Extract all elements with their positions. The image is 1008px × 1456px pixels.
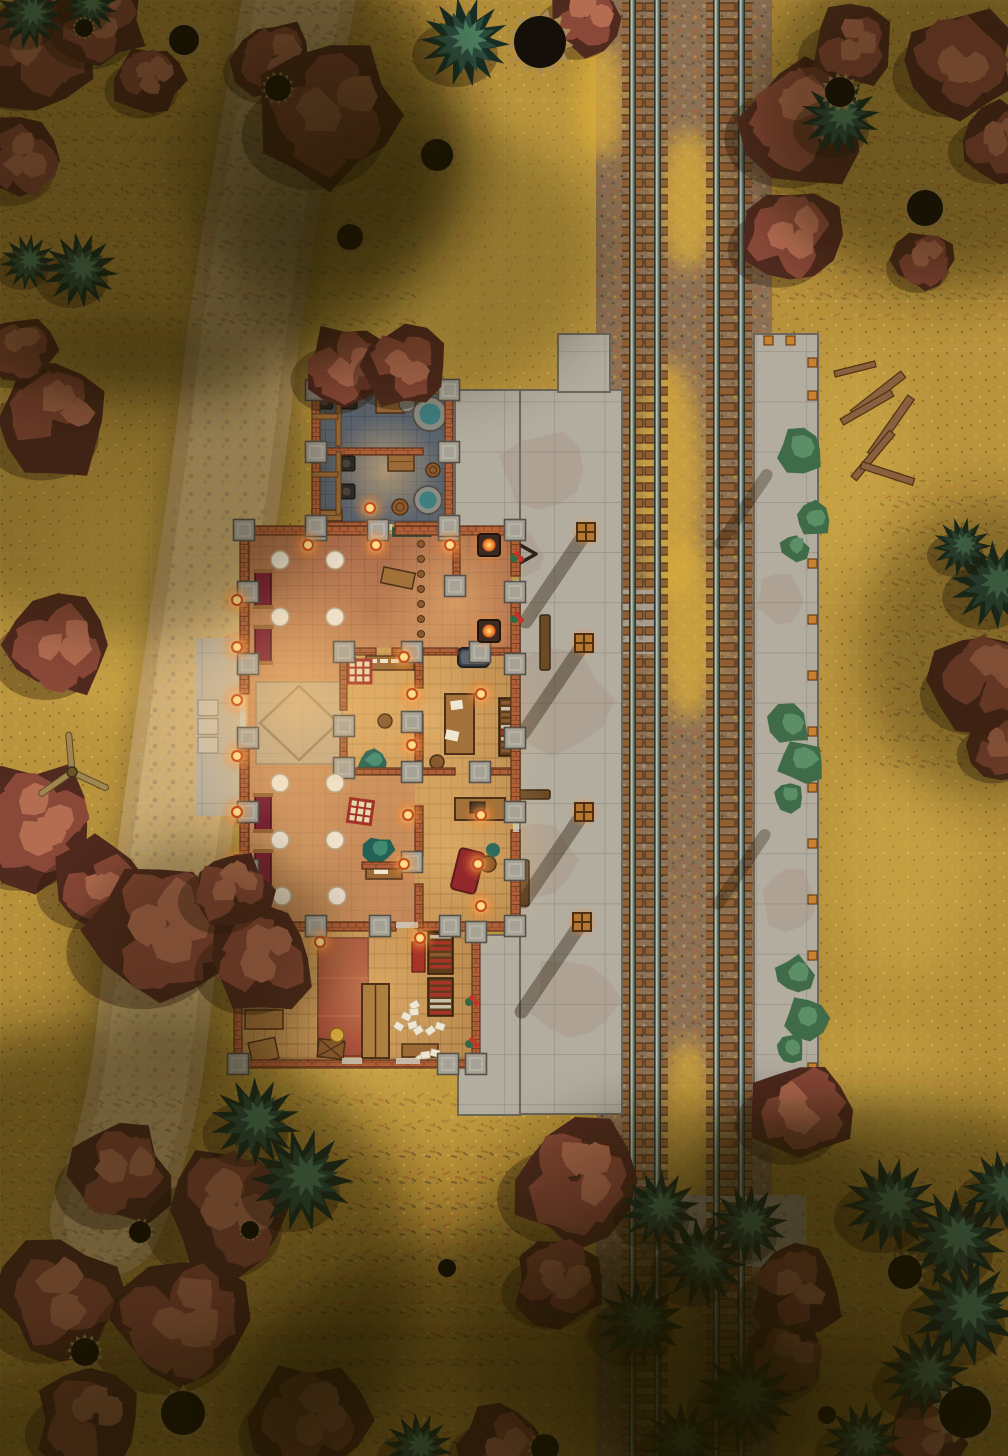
platform-post xyxy=(808,727,817,736)
brick-wall xyxy=(511,600,520,806)
wall-lamp xyxy=(445,540,455,550)
barrel xyxy=(426,463,440,477)
floor-lamp xyxy=(271,831,289,849)
stone-pillar xyxy=(402,762,423,783)
red-flowers xyxy=(514,612,520,618)
burrow-hole xyxy=(514,16,566,68)
stove-fire xyxy=(483,625,496,638)
stone-pillar xyxy=(505,860,526,881)
stone-pillar xyxy=(505,802,526,823)
wall-lamp xyxy=(415,933,425,943)
stone-pillar xyxy=(505,728,526,749)
books xyxy=(430,981,451,985)
platform-post xyxy=(808,391,817,400)
door-threshold xyxy=(342,1058,362,1064)
platform-post xyxy=(786,336,795,345)
desk-paper xyxy=(450,700,463,711)
stone-pillar xyxy=(440,916,461,937)
windmill-hub xyxy=(67,767,77,777)
red-flowers xyxy=(518,556,524,562)
stone-pillar xyxy=(445,576,466,597)
stone-pillar xyxy=(505,916,526,937)
wall-lamp xyxy=(476,810,486,820)
books xyxy=(430,965,451,969)
books xyxy=(430,993,451,997)
platform-post xyxy=(808,615,817,624)
bush-highlight xyxy=(783,787,798,800)
wall-lamp xyxy=(473,859,483,869)
platform-post xyxy=(808,783,817,792)
toilet-seat xyxy=(343,460,351,468)
map-svg xyxy=(0,0,1008,1456)
platform-post xyxy=(808,895,817,904)
hat xyxy=(330,1028,344,1042)
wall-lamp xyxy=(476,901,486,911)
red-flowers xyxy=(514,551,520,557)
brick-wall xyxy=(320,448,423,455)
stone-pillar xyxy=(466,1054,487,1075)
rope-knot xyxy=(418,616,425,623)
platform-post xyxy=(808,951,817,960)
toilet-seat xyxy=(343,488,351,496)
rope-knot xyxy=(418,571,425,578)
wall-lamp xyxy=(403,810,413,820)
floor-lamp xyxy=(326,831,344,849)
stone-pillar xyxy=(505,654,526,675)
basin-water xyxy=(419,491,436,508)
platform-bench xyxy=(540,615,550,670)
red-flowers xyxy=(469,995,475,1001)
stove-fire xyxy=(483,539,496,552)
books xyxy=(501,719,510,723)
rope-knot xyxy=(418,556,425,563)
battlemap-train-station xyxy=(0,0,1008,1456)
door-threshold xyxy=(396,1058,420,1064)
stone-pillar xyxy=(439,442,460,463)
stone-pillar xyxy=(505,582,526,603)
red-flowers xyxy=(518,617,524,623)
barrel xyxy=(392,499,408,515)
floor-lamp xyxy=(326,551,344,569)
wall-lamp xyxy=(476,689,486,699)
books xyxy=(501,749,510,753)
bench-end xyxy=(253,829,273,833)
books xyxy=(501,707,510,711)
red-flowers xyxy=(473,1042,479,1048)
wall-lamp xyxy=(371,540,381,550)
platform-post xyxy=(764,336,773,345)
forest-shadow xyxy=(75,840,335,1060)
stone-pillar xyxy=(438,1054,459,1075)
basin-water xyxy=(419,403,440,424)
stall-partition xyxy=(312,414,338,419)
books xyxy=(430,987,451,991)
stall-partition xyxy=(336,452,341,514)
platform-post xyxy=(808,559,817,568)
floor-lamp xyxy=(328,887,346,905)
books xyxy=(430,959,451,963)
rope-knot xyxy=(418,631,425,638)
platform-post xyxy=(808,671,817,680)
rope-knot xyxy=(418,601,425,608)
red-flowers xyxy=(469,1037,475,1043)
stone-pillar xyxy=(370,916,391,937)
stone-pillar xyxy=(505,520,526,541)
platform-post xyxy=(808,839,817,848)
books xyxy=(430,1011,451,1015)
stool xyxy=(430,755,444,769)
red-flowers xyxy=(473,1000,479,1006)
forest-shadow xyxy=(170,50,470,290)
rope-knot xyxy=(418,541,425,548)
books xyxy=(430,1005,451,1009)
hall-light-bloom xyxy=(180,585,420,825)
wall-lamp xyxy=(399,859,409,869)
books xyxy=(430,953,451,957)
platform-post xyxy=(808,358,817,367)
books xyxy=(501,701,510,705)
brick-wall xyxy=(423,648,458,655)
books xyxy=(430,999,451,1003)
rope-knot xyxy=(418,586,425,593)
scattered-paper xyxy=(421,1051,431,1059)
books xyxy=(501,713,510,717)
wall-lamp xyxy=(365,503,375,513)
stone-pillar xyxy=(470,762,491,783)
stone-pillar xyxy=(466,922,487,943)
